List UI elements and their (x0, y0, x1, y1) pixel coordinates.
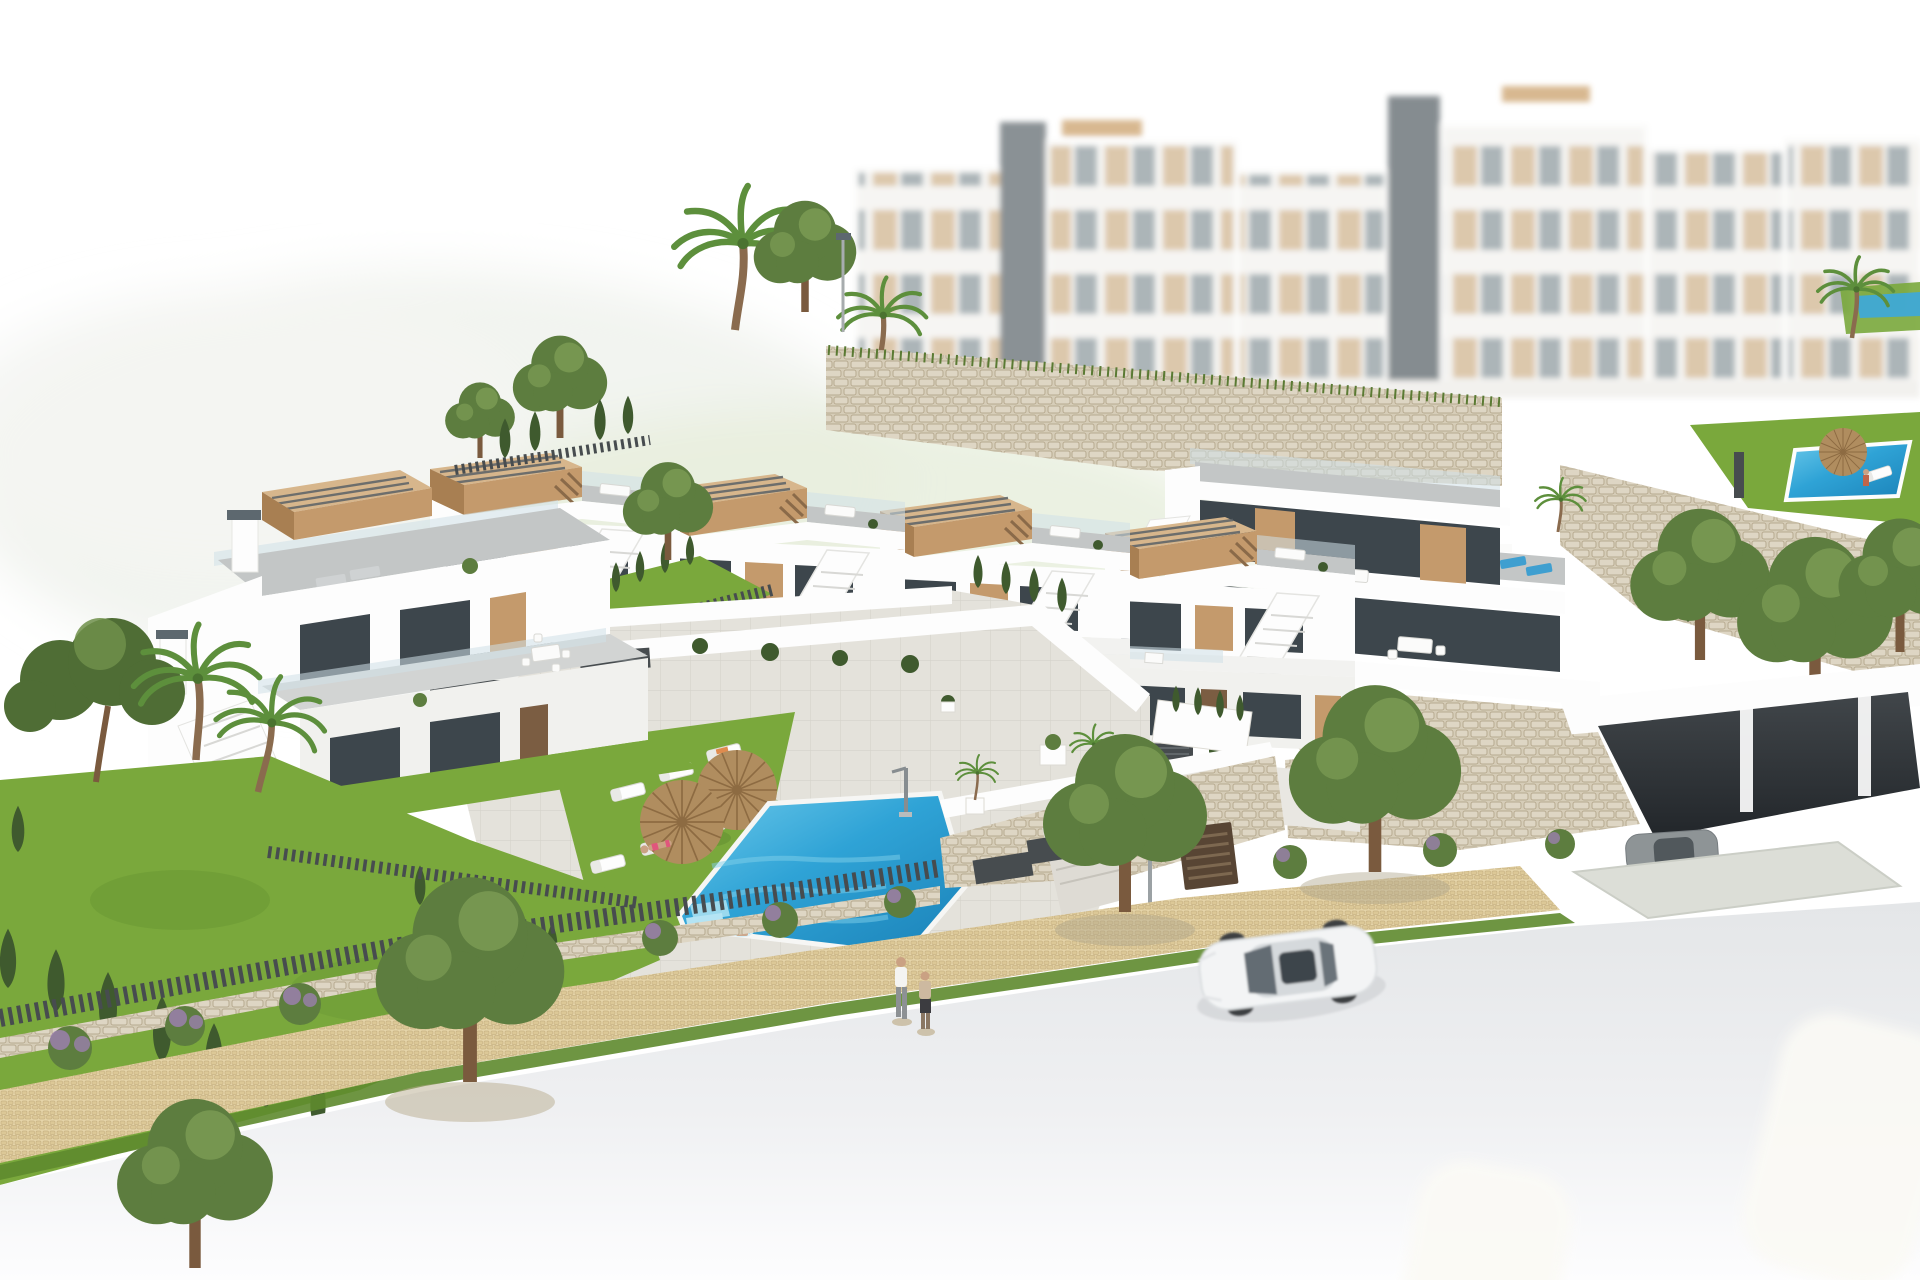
balcony-plant (413, 693, 427, 707)
apartment-tower (856, 96, 1920, 385)
chimney (227, 510, 261, 520)
driveway-apron (1574, 842, 1900, 918)
person-background-pool (1863, 469, 1869, 486)
roof-plant (462, 558, 478, 574)
straw-parasol (640, 780, 724, 864)
render-canvas: Hillside residential complex - aerial 3D… (0, 0, 1920, 1280)
architectural-render (0, 0, 1920, 1280)
rooftop-pergola (1502, 86, 1590, 102)
sunroof (1278, 949, 1318, 985)
rooftop-pergola (1062, 120, 1142, 136)
straw-parasol (1819, 428, 1867, 476)
chimney (156, 630, 188, 639)
background-apartment-towers (850, 86, 1920, 398)
